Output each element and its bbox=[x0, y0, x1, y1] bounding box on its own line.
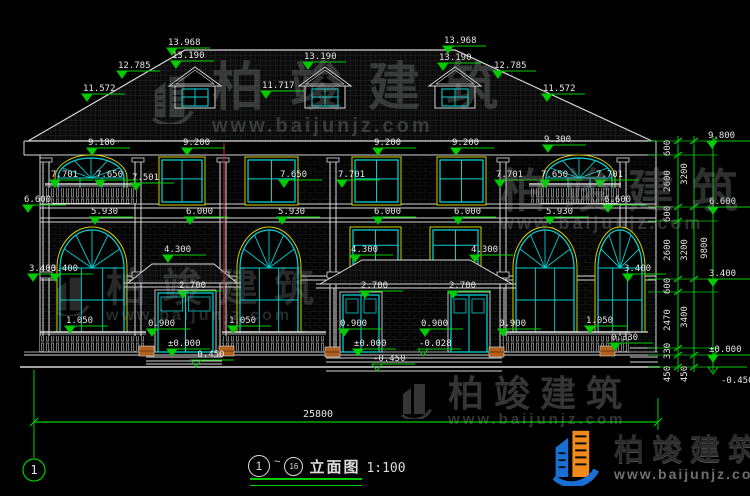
elevation-flag: 13.968 bbox=[443, 36, 486, 53]
elevation-drawing-canvas: 6002600600260060024703304503200320034004… bbox=[0, 0, 750, 496]
elevation-value: 4.300 bbox=[471, 245, 498, 255]
elevation-value: 9.300 bbox=[544, 135, 571, 145]
elevation-flag: 6.000 bbox=[185, 207, 228, 224]
elevation-value: ±0.000 bbox=[168, 339, 201, 349]
window-rect bbox=[245, 157, 298, 205]
elevation-value: 13.968 bbox=[444, 36, 477, 46]
elevation-value: 5.930 bbox=[546, 207, 573, 217]
window-rect bbox=[352, 157, 401, 205]
baijun-logo-block: 柏竣建筑 www.baijunjz.com bbox=[550, 426, 750, 491]
elevation-value: 7.501 bbox=[132, 173, 159, 183]
elevation-value: 2.700 bbox=[179, 281, 206, 291]
chain-dim-value: 3200 bbox=[680, 163, 690, 185]
elevation-flag: 5.930 bbox=[277, 207, 320, 224]
elevation-value: 1.050 bbox=[229, 316, 256, 326]
chain-dim-value: 600 bbox=[663, 206, 673, 222]
elevation-value: 9.200 bbox=[452, 138, 479, 148]
elevation-value: 7.650 bbox=[280, 170, 307, 180]
elevation-value: 7.701 bbox=[51, 170, 78, 180]
elevation-flag: 5.930 bbox=[545, 207, 588, 224]
elevation-value: 2.700 bbox=[361, 281, 388, 291]
elevation-value: -0.450 bbox=[192, 350, 225, 360]
elevation-flag: ±0.000 bbox=[708, 345, 750, 362]
elevation-value: 13.190 bbox=[439, 53, 472, 63]
elevation-flag: -0.450 bbox=[372, 354, 415, 371]
title-scale: 1:100 bbox=[366, 461, 405, 476]
elevation-value: ±0.000 bbox=[709, 345, 742, 355]
title-axis-bubble-end: 16 bbox=[284, 457, 303, 476]
chain-dim-value: 600 bbox=[663, 278, 673, 294]
elevation-value: 0.900 bbox=[340, 319, 367, 329]
chain-dim-value: 600 bbox=[663, 140, 673, 156]
elevation-value: 11.572 bbox=[543, 84, 576, 94]
elevation-value: -0.450 bbox=[373, 354, 406, 364]
chain-dim-value: 9800 bbox=[700, 237, 710, 259]
elevation-value: 1.050 bbox=[586, 316, 613, 326]
elevation-flag: 6.600 bbox=[708, 197, 750, 214]
window-arched bbox=[510, 227, 580, 332]
entrance-door bbox=[448, 292, 490, 352]
elevation-value: -0.028 bbox=[419, 339, 452, 349]
title-underline bbox=[250, 478, 362, 486]
elevation-value: 11.717 bbox=[262, 81, 295, 91]
elevation-value: 9.180 bbox=[88, 138, 115, 148]
drawing-title: 1 ~ 16 立面图 1:100 bbox=[248, 455, 406, 477]
elevation-value: 6.000 bbox=[186, 207, 213, 217]
elevation-value: 5.930 bbox=[278, 207, 305, 217]
title-text: 立面图 bbox=[309, 456, 360, 477]
elevation-value: 13.190 bbox=[172, 51, 205, 61]
elevation-value: 6.600 bbox=[709, 197, 736, 207]
elevation-value: 9.200 bbox=[183, 138, 210, 148]
window-rect bbox=[437, 157, 486, 205]
elevation-value: 11.572 bbox=[83, 84, 116, 94]
elevation-value: 13.190 bbox=[304, 52, 337, 62]
window-rect bbox=[159, 157, 205, 205]
elevation-value: 6.600 bbox=[24, 195, 51, 205]
baijun-logo-icon bbox=[550, 426, 606, 491]
chain-dim-value: 450 bbox=[680, 366, 690, 382]
elevation-value: 0.330 bbox=[611, 333, 638, 343]
elevation-flag: 12.785 bbox=[493, 61, 536, 78]
elevation-value: 6.000 bbox=[374, 207, 401, 217]
elevation-value: 7.650 bbox=[541, 170, 568, 180]
elevation-value: 3.400 bbox=[624, 264, 651, 274]
elevation-value: 13.968 bbox=[168, 38, 201, 48]
elevation-value: 5.930 bbox=[91, 207, 118, 217]
title-axis-bubble-start: 1 bbox=[248, 455, 270, 477]
elevation-value: 0.900 bbox=[148, 319, 175, 329]
overall-width-dim: 25800 bbox=[303, 409, 333, 420]
elevation-value: 4.300 bbox=[164, 245, 191, 255]
elevation-value: 9.800 bbox=[708, 131, 735, 141]
elevation-value: 9.200 bbox=[374, 138, 401, 148]
chain-dim-value: 450 bbox=[663, 366, 673, 382]
elevation-value: 1.050 bbox=[66, 316, 93, 326]
elevation-value: 7.650 bbox=[96, 170, 123, 180]
elevation-value: 2.700 bbox=[449, 281, 476, 291]
elevation-flag: 6.000 bbox=[373, 207, 416, 224]
chain-dim-value: 3400 bbox=[680, 306, 690, 328]
chain-dim-value: 3200 bbox=[680, 239, 690, 261]
logo-site-text: www.baijunjz.com bbox=[614, 467, 750, 482]
logo-brand-text: 柏竣建筑 bbox=[614, 435, 750, 467]
elevation-flag: 3.400 bbox=[708, 269, 750, 286]
elevation-value: ±0.000 bbox=[354, 339, 387, 349]
chain-dim-value: 2470 bbox=[663, 309, 673, 331]
cad-elevation-screenshot: 6002600600260060024703304503200320034004… bbox=[0, 0, 750, 496]
elevation-flag: 6.000 bbox=[453, 207, 496, 224]
elevation-value: 3.400 bbox=[51, 264, 78, 274]
elevation-value: 0.900 bbox=[499, 319, 526, 329]
chain-dim-value: 2600 bbox=[663, 170, 673, 192]
elevation-value: 12.785 bbox=[494, 61, 527, 71]
elevation-value: 7.701 bbox=[338, 170, 365, 180]
chain-dim-value: 2600 bbox=[663, 239, 673, 261]
elevation-value: 7.701 bbox=[496, 170, 523, 180]
right-dimension-chain: 6002600600260060024703304503200320034004… bbox=[648, 136, 718, 382]
elevation-value: -0.450 bbox=[721, 376, 750, 386]
elevation-flag: 9.800 bbox=[707, 131, 750, 148]
elevation-value: 6.600 bbox=[604, 195, 631, 205]
title-axis-separator: ~ bbox=[274, 456, 280, 468]
elevation-value: 4.300 bbox=[351, 245, 378, 255]
elevation-flag: 11.572 bbox=[542, 84, 585, 101]
elevation-value: 0.900 bbox=[421, 319, 448, 329]
elevation-flag: 5.930 bbox=[90, 207, 133, 224]
axis-grid-number: 1 bbox=[30, 463, 37, 477]
elevation-value: 6.000 bbox=[454, 207, 481, 217]
elevation-value: 12.785 bbox=[118, 61, 151, 71]
chain-dim-value: 330 bbox=[663, 343, 673, 359]
elevation-value: 7.701 bbox=[596, 170, 623, 180]
elevation-value: 3.400 bbox=[709, 269, 736, 279]
